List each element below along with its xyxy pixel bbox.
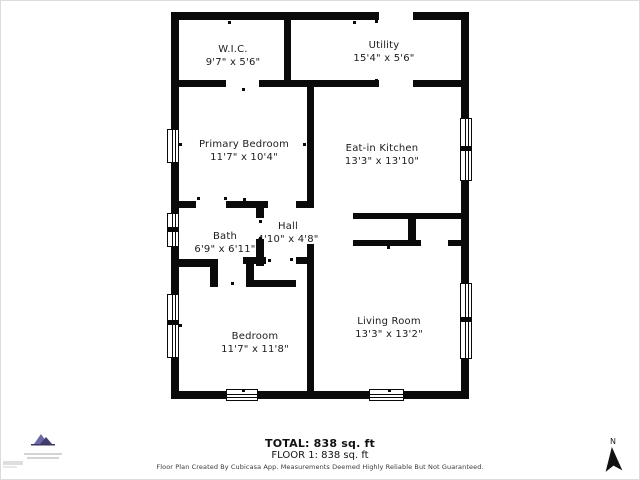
- creator-logo: [21, 431, 65, 459]
- wall: [171, 12, 379, 20]
- window-separator: [460, 146, 472, 151]
- wall: [171, 12, 179, 129]
- room-name: Bedroom: [221, 330, 289, 343]
- room-name: Primary Bedroom: [199, 138, 289, 151]
- window-pane-line: [175, 295, 176, 357]
- logo-fineprint: [27, 457, 59, 459]
- room-label-bedroom: Bedroom 11'7" x 11'8": [221, 330, 289, 356]
- room-name: W.I.C.: [206, 43, 261, 56]
- room-name: Hall: [257, 220, 318, 233]
- door-mark: [259, 237, 262, 240]
- wall: [307, 87, 314, 208]
- window: [369, 389, 404, 401]
- door-mark: [197, 197, 200, 200]
- room-dims: 13'3" x 13'10": [345, 155, 419, 168]
- logo-fineprint: [24, 453, 62, 455]
- room-dims: 15'4" x 5'6": [353, 52, 414, 65]
- wall: [171, 259, 218, 267]
- wall: [461, 12, 469, 118]
- door-mark: [231, 282, 234, 285]
- window-pane-line: [227, 394, 257, 395]
- wall: [210, 267, 218, 287]
- room-dims: 9'7" x 5'6": [206, 56, 261, 69]
- room-dims: 6'9" x 6'11": [194, 243, 255, 256]
- room-dims: 11'7" x 11'8": [221, 343, 289, 356]
- corner-watermark: [3, 461, 23, 468]
- window-pane-line: [227, 397, 257, 398]
- wall: [461, 359, 469, 399]
- window: [167, 129, 179, 163]
- window-separator: [167, 320, 179, 325]
- total-area-text: TOTAL: 838 sq. ft: [1, 437, 639, 450]
- room-label-bath: Bath 6'9" x 6'11": [194, 230, 255, 256]
- room-name: Eat-in Kitchen: [345, 142, 419, 155]
- door-mark: [228, 21, 231, 24]
- room-dims: 11'7" x 10'4": [199, 151, 289, 164]
- door-mark: [179, 324, 182, 327]
- room-name: Utility: [353, 39, 414, 52]
- room-label-living-room: Living Room 13'3" x 13'2": [355, 315, 423, 341]
- wall: [171, 247, 179, 294]
- window-pane-line: [370, 394, 403, 395]
- door-mark: [259, 220, 262, 223]
- door-mark: [353, 21, 356, 24]
- window: [167, 294, 179, 358]
- room-label-utility: Utility 15'4" x 5'6": [353, 39, 414, 65]
- window-pane-line: [172, 295, 173, 357]
- wall: [254, 280, 296, 287]
- mountain-logo-icon: [26, 431, 60, 447]
- wall: [404, 391, 469, 399]
- wall: [256, 208, 264, 218]
- door-mark: [388, 389, 391, 392]
- wall: [413, 80, 461, 87]
- door-mark: [242, 88, 245, 91]
- wall: [226, 201, 268, 208]
- room-label-eat-in-kitchen: Eat-in Kitchen 13'3" x 13'10": [345, 142, 419, 168]
- room-label-primary-bedroom: Primary Bedroom 11'7" x 10'4": [199, 138, 289, 164]
- wall: [307, 244, 314, 391]
- door-mark: [290, 258, 293, 261]
- wall: [258, 391, 369, 399]
- door-mark: [375, 79, 378, 82]
- wall: [461, 181, 469, 283]
- room-name: Living Room: [355, 315, 423, 328]
- wall: [243, 257, 266, 264]
- wall: [296, 201, 314, 208]
- wall: [246, 264, 254, 287]
- window-pane-line: [172, 130, 173, 162]
- room-label-wic: W.I.C. 9'7" x 5'6": [206, 43, 261, 69]
- window-separator: [167, 227, 179, 232]
- wall: [171, 391, 226, 399]
- window-separator: [460, 317, 472, 322]
- door-mark: [242, 389, 245, 392]
- room-label-hall: Hall 4'10" x 4'8": [257, 220, 318, 246]
- north-arrow-icon: [600, 445, 626, 475]
- floor-area-text: FLOOR 1: 838 sq. ft: [1, 450, 639, 461]
- wall: [259, 80, 379, 87]
- door-mark: [375, 20, 378, 23]
- window-pane-line: [175, 130, 176, 162]
- room-dims: 13'3" x 13'2": [355, 328, 423, 341]
- door-mark: [224, 197, 227, 200]
- wall: [171, 358, 179, 399]
- door-mark: [387, 246, 390, 249]
- door-mark: [303, 143, 306, 146]
- floor-plan: W.I.C. 9'7" x 5'6" Utility 15'4" x 5'6" …: [0, 0, 640, 480]
- door-mark: [179, 143, 182, 146]
- wall: [171, 80, 226, 87]
- disclaimer-text: Floor Plan Created By Cubicasa App. Meas…: [1, 463, 639, 471]
- door-mark: [243, 198, 246, 201]
- wall: [178, 201, 196, 208]
- compass: N: [599, 437, 627, 478]
- wall: [448, 240, 462, 246]
- wall: [284, 20, 291, 80]
- door-mark: [268, 259, 271, 262]
- window-pane-line: [370, 397, 403, 398]
- room-name: Bath: [194, 230, 255, 243]
